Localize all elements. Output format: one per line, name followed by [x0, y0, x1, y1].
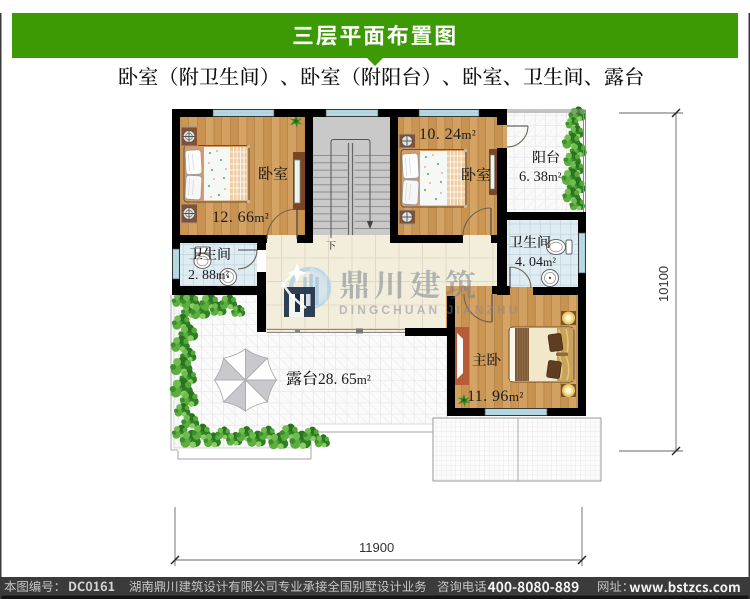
- svg-text:6. 38m²: 6. 38m²: [519, 169, 562, 185]
- svg-text:2. 88m²: 2. 88m²: [188, 268, 229, 283]
- svg-text:12. 66m²: 12. 66m²: [212, 209, 269, 226]
- svg-text:10100: 10100: [656, 266, 671, 302]
- svg-text:4. 04m²: 4. 04m²: [515, 255, 556, 270]
- svg-text:DINGCHUAN JIANZHU: DINGCHUAN JIANZHU: [339, 303, 520, 317]
- svg-text:11900: 11900: [359, 540, 394, 555]
- svg-text:11. 96m²: 11. 96m²: [467, 388, 524, 405]
- svg-text:28. 65m²: 28. 65m²: [318, 371, 371, 388]
- svg-text:10. 24m²: 10. 24m²: [419, 126, 476, 143]
